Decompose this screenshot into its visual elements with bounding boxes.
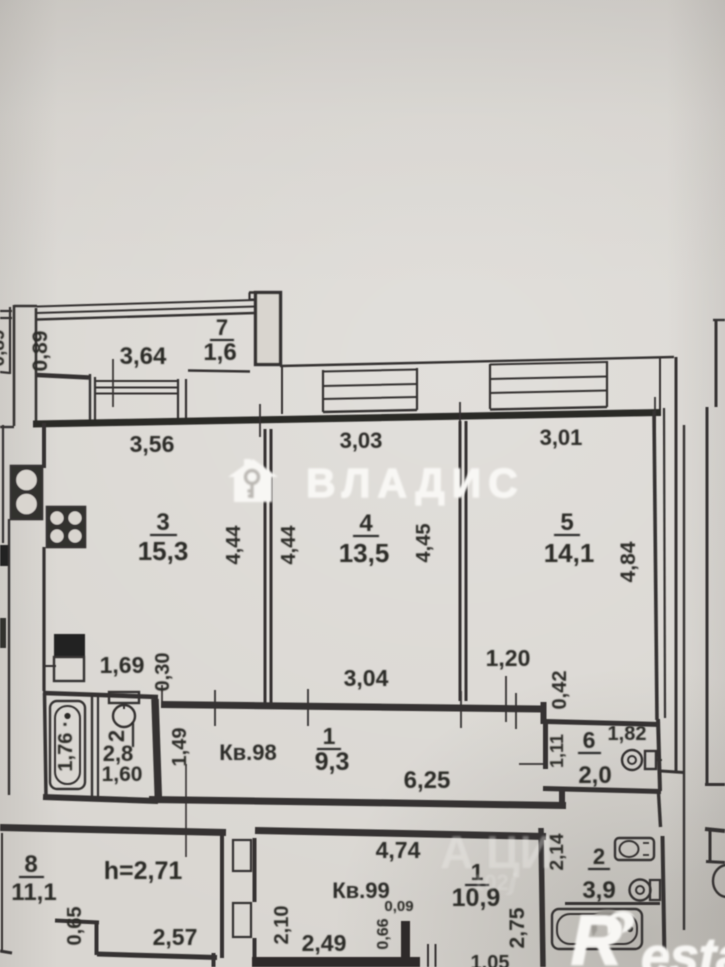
svg-text:h=2,71: h=2,71 [104, 857, 183, 885]
svg-text:4,44: 4,44 [278, 525, 300, 565]
svg-text:R: R [571, 901, 622, 967]
svg-text:3,9: 3,9 [582, 877, 615, 904]
svg-text:15,3: 15,3 [138, 536, 189, 566]
svg-text:0,09: 0,09 [384, 898, 413, 915]
svg-text:3,01: 3,01 [540, 425, 583, 450]
svg-text:8: 8 [24, 851, 37, 878]
svg-text:0,89: 0,89 [0, 330, 9, 367]
svg-text:1,49: 1,49 [169, 728, 191, 767]
svg-text:4: 4 [359, 510, 373, 537]
svg-text:13,5: 13,5 [339, 538, 390, 568]
svg-text:6,25: 6,25 [404, 767, 451, 794]
svg-text:3,03: 3,03 [340, 428, 383, 453]
svg-text:3: 3 [156, 509, 169, 536]
svg-text:2: 2 [593, 844, 605, 869]
svg-text:0,66: 0,66 [375, 918, 392, 949]
svg-text:1,6: 1,6 [203, 339, 236, 366]
svg-text:1,11: 1,11 [547, 734, 567, 768]
svg-text:1,82: 1,82 [608, 723, 647, 745]
svg-text:1,76 ·: 1,76 · [55, 720, 77, 771]
svg-text:7: 7 [216, 315, 228, 340]
svg-text:4,45: 4,45 [413, 524, 435, 563]
svg-text:estate: estate [641, 928, 725, 967]
svg-text:5: 5 [560, 509, 573, 536]
svg-text:0,65: 0,65 [64, 907, 86, 946]
svg-text:Кв.98: Кв.98 [219, 740, 277, 765]
svg-text:4,44: 4,44 [223, 525, 245, 565]
svg-text:4,84: 4,84 [617, 541, 640, 582]
svg-text:0,89: 0,89 [29, 331, 52, 372]
svg-text:3,56: 3,56 [130, 431, 175, 457]
svg-text:Кв.99: Кв.99 [332, 878, 390, 903]
svg-text:0,42: 0,42 [549, 671, 571, 710]
svg-text:2,0: 2,0 [578, 762, 611, 789]
svg-text:1,69: 1,69 [100, 652, 145, 678]
svg-text:3,04: 3,04 [344, 665, 389, 691]
svg-text:1,60: 1,60 [102, 763, 143, 786]
svg-text:4,74: 4,74 [376, 837, 421, 863]
svg-text:2,49: 2,49 [302, 930, 347, 956]
svg-text:ВЛАДИС: ВЛАДИС [306, 460, 525, 506]
svg-text:1: 1 [323, 723, 336, 749]
svg-text:9,3: 9,3 [315, 748, 350, 776]
svg-text:1,05: 1,05 [471, 952, 510, 967]
svg-text:2,10: 2,10 [271, 906, 293, 945]
svg-text:14,1: 14,1 [544, 538, 595, 568]
svg-text:0,30: 0,30 [152, 653, 174, 692]
svg-text:1,20: 1,20 [486, 645, 531, 671]
svg-text:3,64: 3,64 [120, 343, 167, 370]
svg-text:102ⅉ: 102ⅉ [472, 870, 517, 895]
svg-text:2,75: 2,75 [506, 907, 529, 948]
svg-text:2,57: 2,57 [153, 924, 198, 950]
svg-text:11,1: 11,1 [11, 879, 56, 906]
svg-text:6: 6 [583, 727, 596, 753]
